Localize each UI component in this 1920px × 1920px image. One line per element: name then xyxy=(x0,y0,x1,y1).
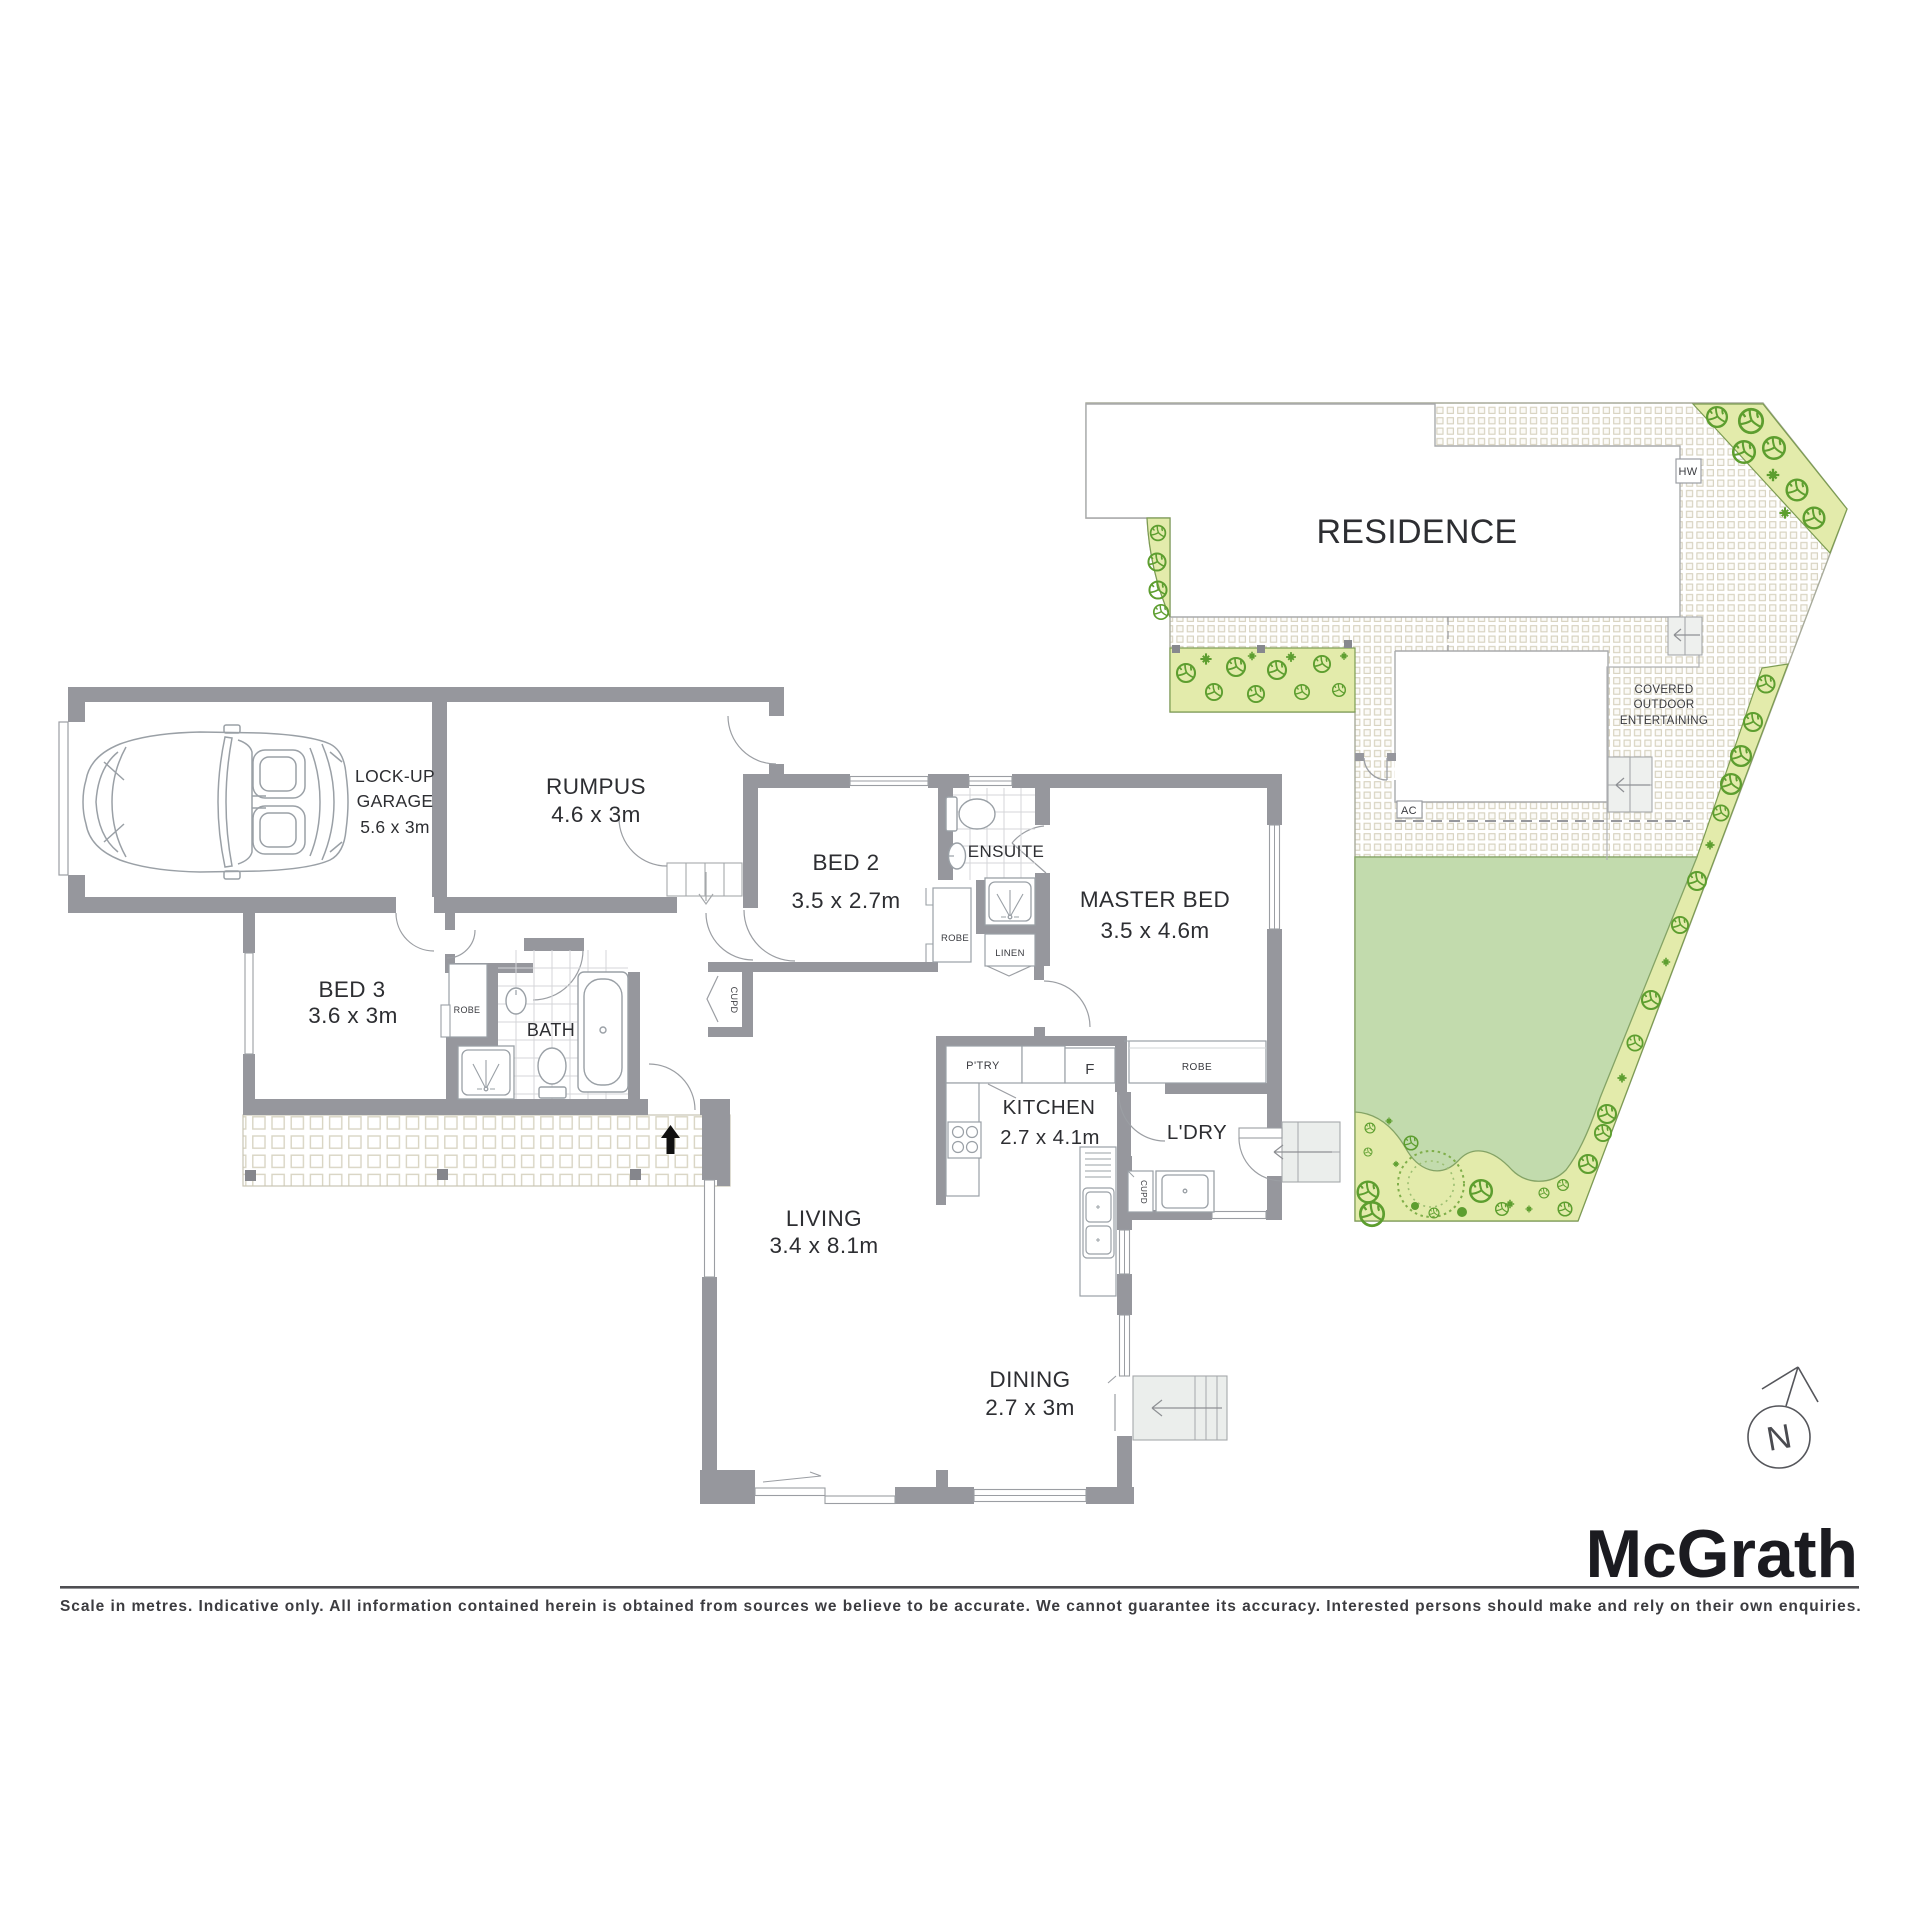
svg-text:BATH: BATH xyxy=(527,1020,575,1040)
svg-text:DINING: DINING xyxy=(989,1367,1070,1392)
svg-text:RUMPUS: RUMPUS xyxy=(546,774,646,799)
svg-text:McGrath: McGrath xyxy=(1586,1516,1859,1592)
svg-text:ENTERTAINING: ENTERTAINING xyxy=(1620,715,1708,727)
svg-text:5.6 x 3m: 5.6 x 3m xyxy=(360,817,430,837)
svg-text:AC: AC xyxy=(1401,805,1417,817)
svg-text:CUPD: CUPD xyxy=(1139,1180,1148,1204)
svg-text:N: N xyxy=(1764,1417,1795,1459)
svg-text:GARAGE: GARAGE xyxy=(357,791,434,811)
svg-text:L'DRY: L'DRY xyxy=(1167,1121,1227,1144)
svg-text:3.5 x 4.6m: 3.5 x 4.6m xyxy=(1100,918,1209,943)
svg-text:KITCHEN: KITCHEN xyxy=(1003,1096,1096,1119)
svg-text:BED 3: BED 3 xyxy=(318,977,385,1002)
svg-text:BED 2: BED 2 xyxy=(812,850,879,875)
svg-text:COVERED: COVERED xyxy=(1635,684,1694,696)
svg-text:4.6 x 3m: 4.6 x 3m xyxy=(551,802,641,827)
svg-text:RESIDENCE: RESIDENCE xyxy=(1316,513,1517,551)
svg-text:ROBE: ROBE xyxy=(941,933,969,944)
svg-text:F: F xyxy=(1085,1061,1094,1078)
svg-text:LIVING: LIVING xyxy=(786,1206,862,1231)
svg-text:ROBE: ROBE xyxy=(1182,1062,1212,1073)
svg-text:P'TRY: P'TRY xyxy=(966,1060,1000,1072)
svg-text:OUTDOOR: OUTDOOR xyxy=(1634,699,1695,711)
svg-text:MASTER BED: MASTER BED xyxy=(1080,887,1230,912)
svg-text:CUPD: CUPD xyxy=(729,987,739,1014)
svg-text:Scale in metres. Indicative on: Scale in metres. Indicative only. All in… xyxy=(60,1598,1862,1615)
svg-text:LOCK-UP: LOCK-UP xyxy=(355,766,435,786)
svg-text:2.7 x 4.1m: 2.7 x 4.1m xyxy=(1000,1126,1100,1149)
svg-text:ROBE: ROBE xyxy=(454,1005,481,1015)
svg-text:ENSUITE: ENSUITE xyxy=(968,842,1044,861)
svg-text:3.4 x 8.1m: 3.4 x 8.1m xyxy=(769,1233,878,1258)
svg-text:2.7 x 3m: 2.7 x 3m xyxy=(985,1395,1075,1420)
svg-text:LINEN: LINEN xyxy=(995,948,1024,959)
svg-text:HW: HW xyxy=(1679,466,1698,478)
svg-text:3.6 x 3m: 3.6 x 3m xyxy=(308,1003,398,1028)
svg-text:3.5 x 2.7m: 3.5 x 2.7m xyxy=(791,888,900,913)
